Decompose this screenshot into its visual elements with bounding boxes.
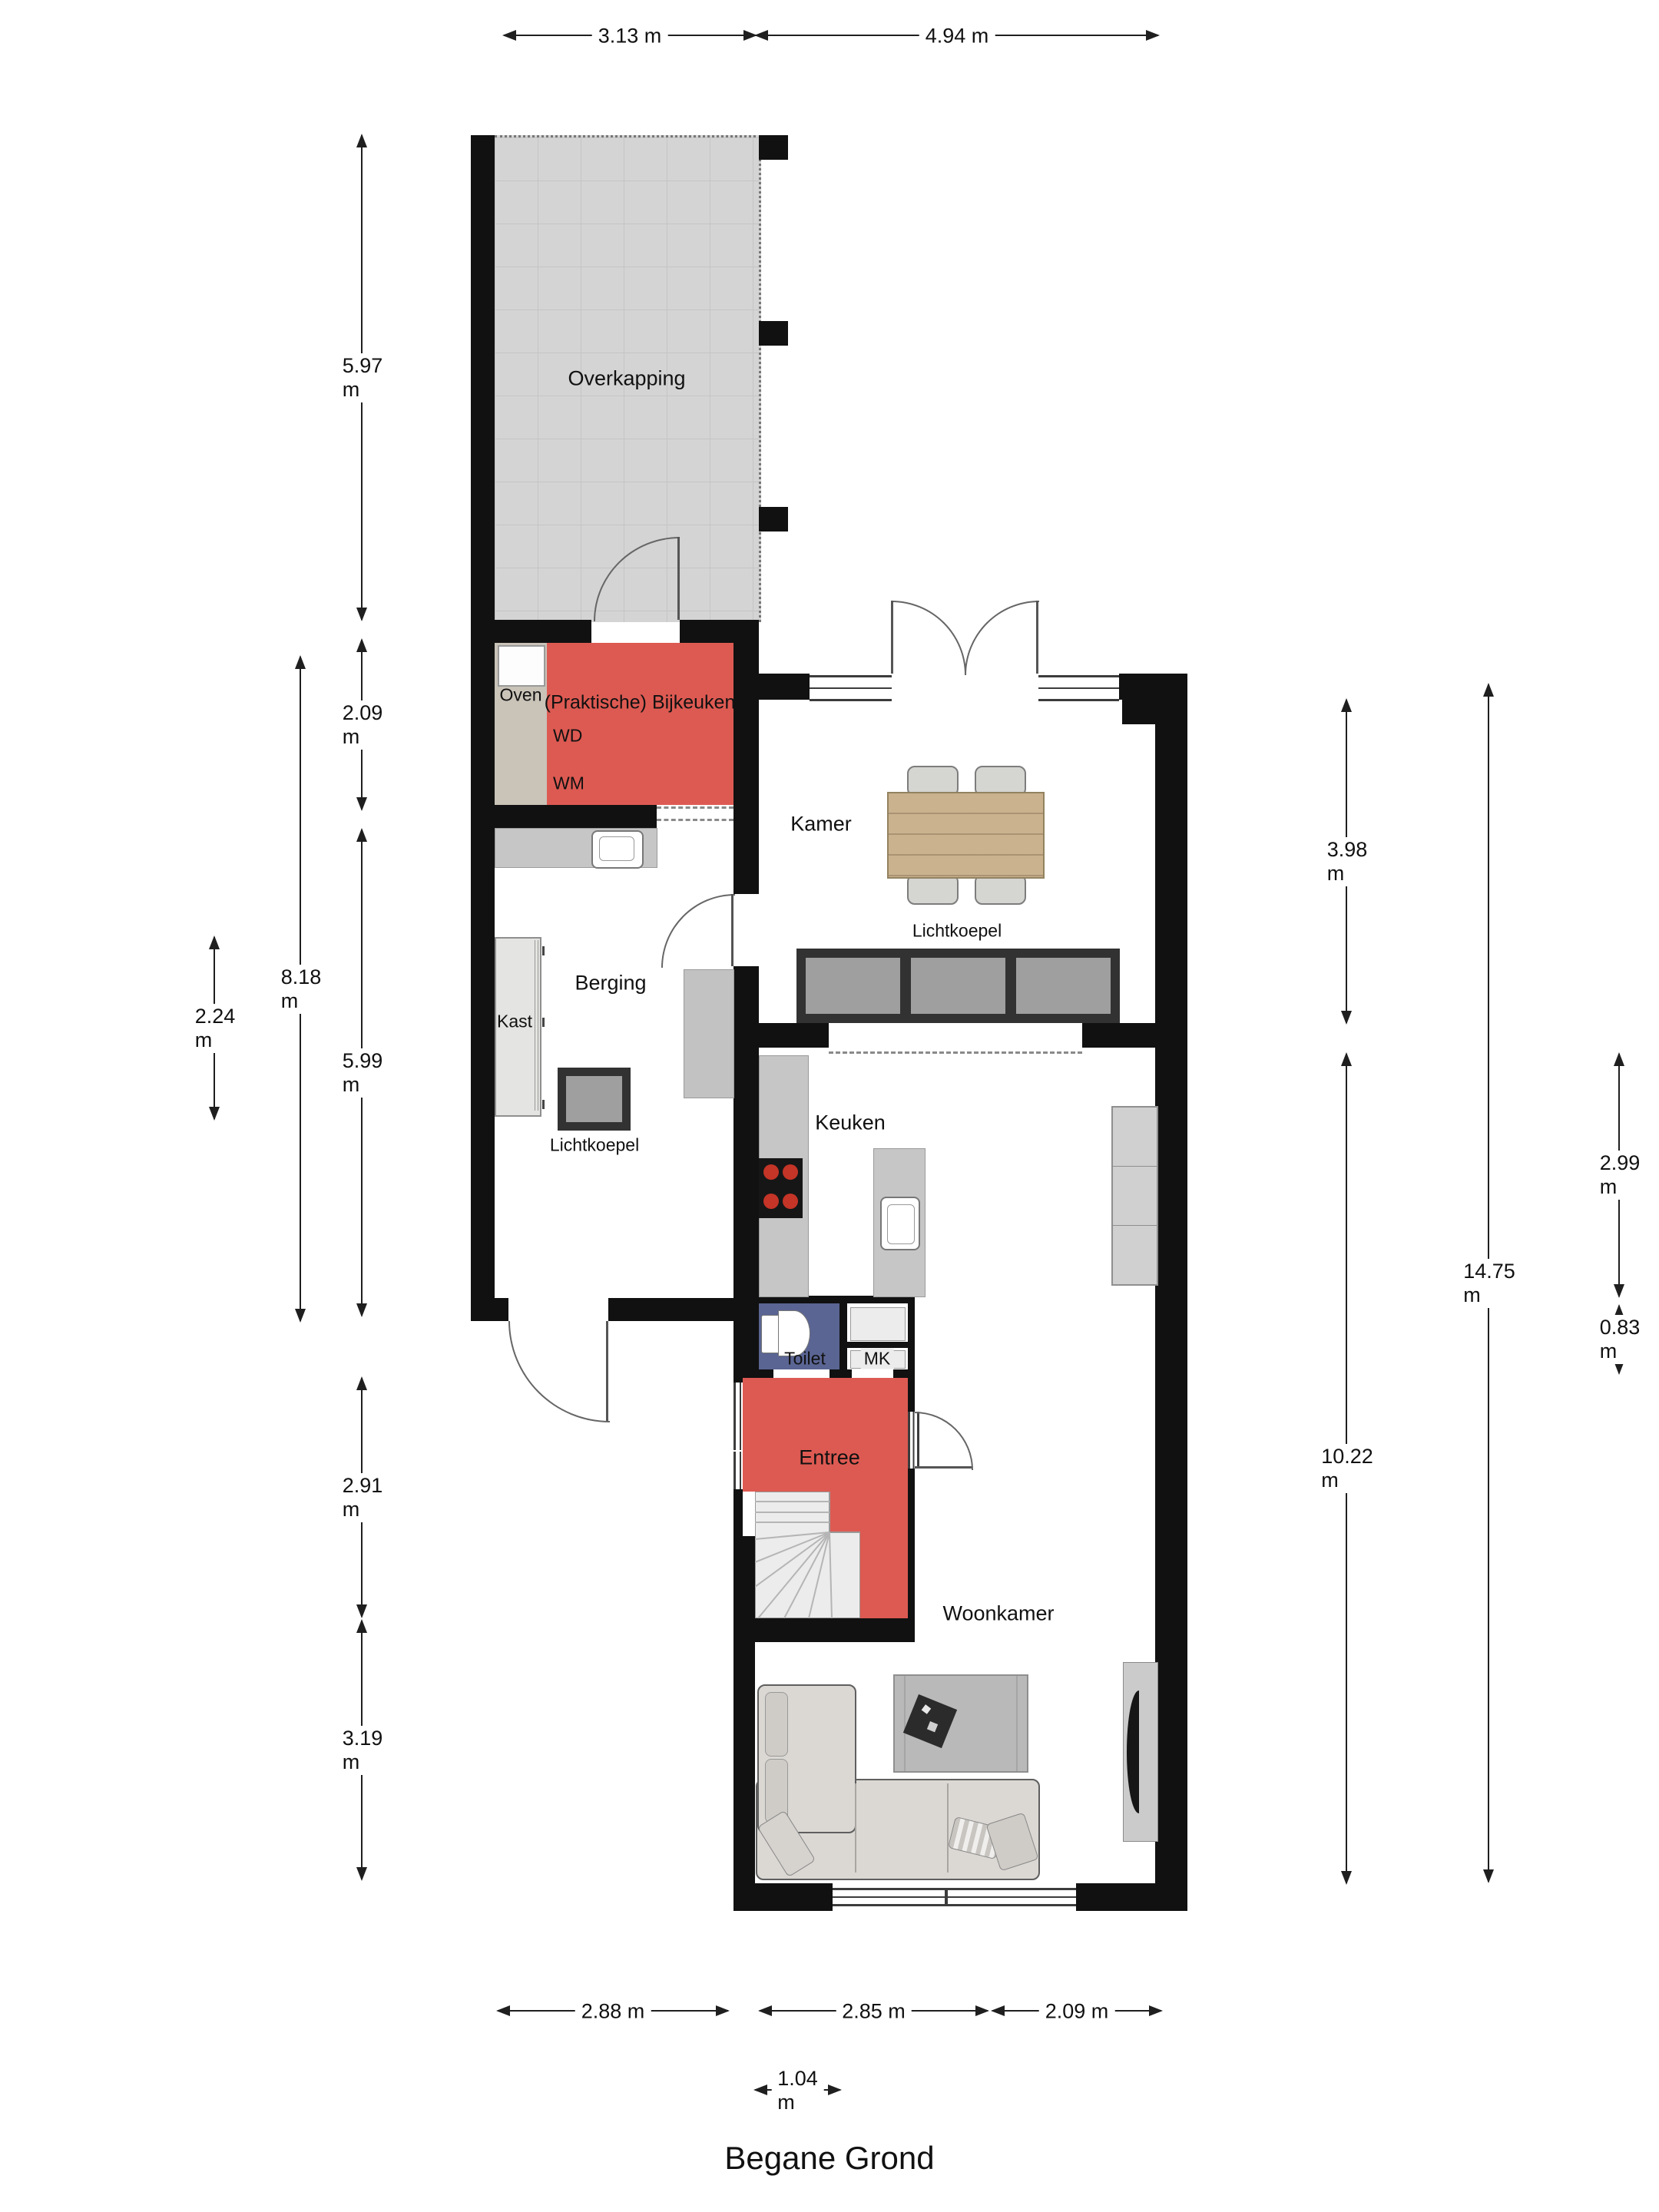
floor-plan: 3.13 m 4.94 m 5.97 m 2.09 m 8.18 m 2.24 … (0, 0, 1659, 2212)
window (833, 1888, 1076, 1906)
arrow-right-icon (1146, 30, 1160, 41)
feature-label-wd: WD (553, 726, 582, 747)
wall (733, 1489, 743, 1536)
kast-tick (542, 1018, 545, 1027)
dim-label: 3.13 m (592, 24, 668, 49)
dim-right-2_99: 2.99 m (1618, 1054, 1620, 1296)
arrow-left-icon (758, 2005, 772, 2016)
arrow-up-icon (356, 1376, 367, 1390)
sofa-back-cushion (765, 1692, 788, 1757)
rug-line (904, 1676, 906, 1771)
dim-label: 5.97 m (336, 353, 389, 402)
dim-right-3_98: 3.98 m (1346, 700, 1347, 1023)
wall (1155, 674, 1187, 1911)
kast-tick (542, 1100, 545, 1109)
dim-top-2: 4.94 m (756, 35, 1158, 36)
dim-bottom-2_88: 2.88 m (498, 2010, 728, 2012)
rug-line (1016, 1676, 1018, 1771)
island-sink (880, 1197, 920, 1250)
arrow-down-icon (356, 1604, 367, 1618)
feature-label-wm: WM (553, 773, 584, 794)
oven-appliance (498, 645, 545, 687)
burner (763, 1164, 779, 1180)
room-label-kamer: Kamer (790, 813, 852, 836)
room-label-overkapping: Overkapping (568, 367, 685, 391)
dim-label: 10.22 m (1315, 1444, 1379, 1493)
sofa-seam (947, 1783, 949, 1873)
arrow-up-icon (209, 935, 220, 949)
page-title: Begane Grond (724, 2140, 934, 2177)
skylight-kamer (796, 949, 1120, 1023)
wall (1076, 1883, 1187, 1911)
arrow-up-icon (1341, 698, 1352, 712)
dim-label: 2.85 m (836, 1999, 912, 2025)
door-arc (508, 1321, 610, 1422)
room-label-keuken: Keuken (815, 1111, 886, 1135)
dim-label: 2.91 m (336, 1473, 389, 1522)
room-label-entree: Entree (799, 1446, 860, 1470)
dim-bottom-2_09: 2.09 m (992, 2010, 1161, 2012)
cooktop (759, 1158, 803, 1218)
arrow-down-icon (1341, 1011, 1352, 1025)
skylight-pane (911, 958, 1005, 1014)
wall (733, 1618, 915, 1642)
arrow-down-icon (356, 797, 367, 811)
sink-basin (599, 836, 634, 861)
burner (783, 1164, 798, 1180)
arrow-left-icon (496, 2005, 510, 2016)
feature-label-lichtkoepel-berging: Lichtkoepel (550, 1135, 639, 1156)
arrow-left-icon (754, 30, 768, 41)
door-leaf (731, 894, 733, 966)
kast-tick (542, 946, 545, 955)
skylight-berging (558, 1068, 631, 1131)
dim-label: 2.88 m (575, 1999, 651, 2025)
opening-dashed (657, 819, 733, 821)
cabinet-divider (1113, 1166, 1157, 1167)
wall (908, 1469, 915, 1618)
skylight-pane (1016, 958, 1111, 1014)
arrow-left-icon (502, 30, 516, 41)
dim-label: 4.94 m (919, 24, 995, 49)
arrow-up-icon (356, 134, 367, 147)
door-arc (965, 601, 1039, 675)
room-label-mk: MK (861, 1349, 894, 1369)
burner (783, 1194, 798, 1209)
dim-label: 14.75 m (1457, 1259, 1522, 1308)
door-arc (915, 1412, 973, 1470)
feature-label-kast: Kast (497, 1012, 532, 1032)
wall (839, 1303, 847, 1369)
wall (733, 1298, 759, 1378)
table-decor (927, 1721, 938, 1732)
window-mullion (945, 1888, 948, 1906)
dim-left-8_18: 8.18 m (300, 657, 301, 1321)
room-label-woonkamer: Woonkamer (942, 1602, 1054, 1626)
wall (847, 1342, 908, 1348)
dim-right-0_83: 0.83 m (1618, 1306, 1620, 1373)
wall-pillar (759, 507, 788, 531)
arrow-down-icon (1341, 1871, 1352, 1885)
mk-shelf (850, 1307, 906, 1341)
arrow-down-icon (1614, 1284, 1624, 1298)
dim-bottom-2_85: 2.85 m (760, 2010, 988, 2012)
wall (733, 966, 759, 1298)
room-label-bijkeuken: (Praktische) Bijkeuken (545, 692, 736, 714)
door-leaf (915, 1466, 972, 1469)
arrow-up-icon (295, 655, 306, 669)
stairs-icon (755, 1492, 860, 1618)
dim-label: 5.99 m (336, 1048, 389, 1098)
arrow-down-icon (295, 1309, 306, 1323)
wall (1082, 1023, 1155, 1048)
dim-left-2_24: 2.24 m (214, 937, 215, 1119)
wall (908, 1378, 915, 1412)
arrow-right-icon (716, 2005, 730, 2016)
arrow-up-icon (1341, 1052, 1352, 1066)
room-label-berging: Berging (575, 972, 646, 995)
wall (495, 805, 657, 828)
arrow-up-icon (356, 638, 367, 652)
wall (471, 135, 495, 620)
tv-cabinet (1123, 1662, 1158, 1842)
wall (471, 620, 591, 643)
room-entree (743, 1378, 908, 1492)
arrow-up-icon (356, 1619, 367, 1633)
chair (907, 874, 959, 905)
arrow-right-icon (1149, 2005, 1163, 2016)
feature-label-lichtkoepel-kamer: Lichtkoepel (912, 921, 1002, 942)
dim-label: 3.98 m (1321, 837, 1374, 886)
skylight-pane (566, 1076, 622, 1122)
dim-label: 3.19 m (336, 1726, 389, 1775)
wall (908, 1296, 915, 1378)
wall (733, 620, 759, 894)
arrow-down-icon (356, 608, 367, 621)
door-leaf (606, 1321, 608, 1421)
dim-bottom-1_04: 1.04 m (755, 2089, 840, 2091)
sofa-seam (855, 1783, 856, 1873)
wall (733, 1883, 833, 1911)
arrow-up-icon (1483, 683, 1494, 697)
door-leaf (891, 601, 893, 674)
wall (733, 1369, 773, 1378)
dim-label: 2.24 m (189, 1004, 242, 1053)
wall (829, 1369, 852, 1378)
feature-label-oven: Oven (500, 685, 542, 706)
opening-dashed (657, 806, 733, 809)
sink-basin (887, 1204, 915, 1244)
dim-left-2_09: 2.09 m (361, 640, 363, 810)
arrow-right-icon (828, 2085, 842, 2095)
tall-cabinet (1111, 1106, 1158, 1286)
dim-label: 2.99 m (1594, 1151, 1647, 1200)
wall (759, 674, 810, 700)
dim-label: 2.09 m (1039, 1999, 1115, 2025)
window (810, 675, 892, 701)
room-label-toilet: Toilet (784, 1349, 826, 1369)
berging-side-panel (684, 969, 734, 1098)
wall-pillar (759, 135, 788, 160)
arrow-left-icon (991, 2005, 1005, 2016)
kast-door-line (538, 940, 538, 1111)
stairs (755, 1492, 860, 1618)
dim-left-2_91: 2.91 m (361, 1378, 363, 1617)
wall (471, 1298, 508, 1321)
opening-dashed (829, 1051, 1082, 1054)
dim-right-10_22: 10.22 m (1346, 1054, 1347, 1883)
wall (733, 1536, 755, 1911)
dining-table (887, 792, 1045, 879)
dim-top-1: 3.13 m (504, 35, 756, 36)
skylight-pane (806, 958, 900, 1014)
dim-left-3_19: 3.19 m (361, 1621, 363, 1879)
door-leaf (677, 537, 680, 620)
dim-label: 0.83 m (1594, 1315, 1647, 1364)
wall (680, 620, 733, 643)
arrow-up-icon (1614, 1052, 1624, 1066)
wall (759, 1023, 829, 1048)
wall-pillar (759, 321, 788, 346)
arrow-down-icon (356, 1303, 367, 1317)
sink (591, 830, 644, 869)
door-arc (892, 601, 966, 675)
cabinet-divider (1113, 1225, 1157, 1226)
kast-door-line (535, 940, 535, 1111)
wall (471, 620, 495, 1321)
arrow-left-icon (753, 2085, 767, 2095)
chair (975, 874, 1026, 905)
arrow-down-icon (1483, 1869, 1494, 1883)
dim-right-14_75: 14.75 m (1488, 684, 1489, 1882)
arrow-up-icon (356, 828, 367, 842)
arrow-down-icon (209, 1107, 220, 1121)
arrow-right-icon (975, 2005, 989, 2016)
dim-left-5_99: 5.99 m (361, 829, 363, 1316)
dim-label: 8.18 m (275, 965, 328, 1014)
dim-label: 2.09 m (336, 700, 389, 750)
window (1038, 675, 1119, 701)
burner (763, 1194, 779, 1209)
dim-label: 1.04 m (771, 2066, 824, 2115)
tv-icon (1127, 1690, 1139, 1813)
arrow-down-icon (356, 1867, 367, 1881)
dim-left-5_97: 5.97 m (361, 135, 363, 620)
door-leaf (1036, 601, 1038, 674)
table-decor (922, 1704, 932, 1714)
wall (893, 1369, 915, 1378)
door-arc (661, 894, 735, 968)
